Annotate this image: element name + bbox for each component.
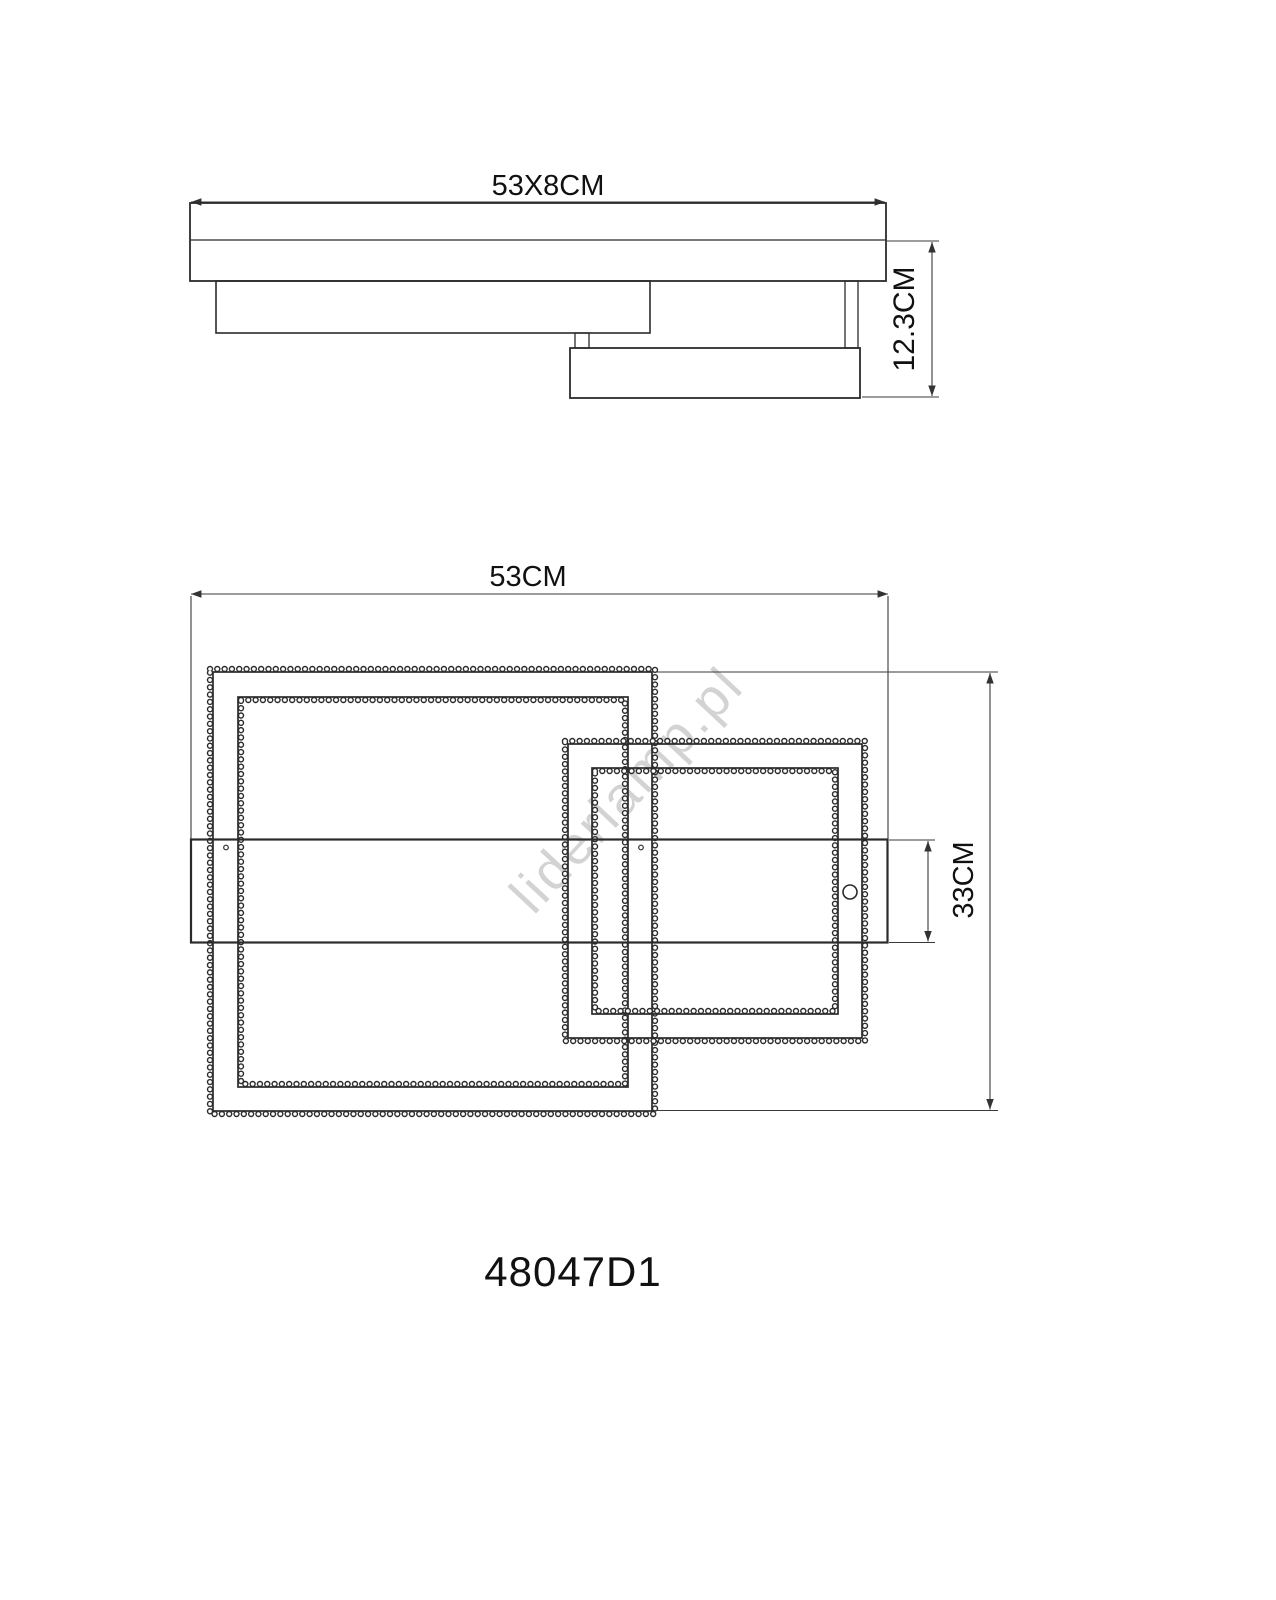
plan-view-drawing: 53CM	[191, 561, 998, 1114]
large-frame-side-profile	[216, 281, 650, 333]
connector-stub	[575, 333, 589, 348]
technical-drawing: liderlamp.pl 53X8CM 12.3CM 53CM	[0, 0, 1276, 1600]
side-view-height-label: 12.3CM	[888, 266, 921, 371]
small-frame-side-profile	[570, 348, 860, 398]
support-post	[845, 281, 858, 348]
mounting-hole-center	[639, 845, 644, 850]
plan-view-height-label: 33CM	[948, 841, 980, 918]
drawing-page: liderlamp.pl 53X8CM 12.3CM 53CM	[0, 0, 1276, 1600]
cable-hole	[843, 885, 857, 899]
product-code: 48047D1	[484, 1248, 661, 1295]
side-view-width-label: 53X8CM	[492, 170, 605, 202]
side-view-drawing: 53X8CM 12.3CM	[190, 170, 939, 398]
plan-view-width-label: 53CM	[489, 561, 566, 593]
large-frame	[210, 669, 655, 1114]
ceiling-plate	[190, 203, 886, 281]
mounting-hole-left	[224, 845, 229, 850]
